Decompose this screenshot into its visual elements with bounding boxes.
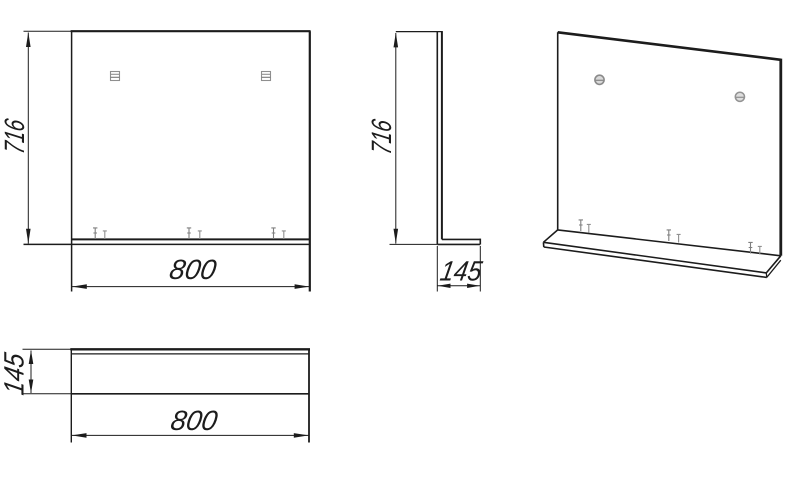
svg-text:145: 145 — [438, 255, 485, 287]
svg-text:716: 716 — [0, 116, 30, 156]
svg-text:145: 145 — [0, 350, 29, 397]
svg-text:800: 800 — [168, 404, 220, 436]
svg-text:716: 716 — [365, 117, 397, 157]
svg-text:800: 800 — [167, 253, 219, 285]
